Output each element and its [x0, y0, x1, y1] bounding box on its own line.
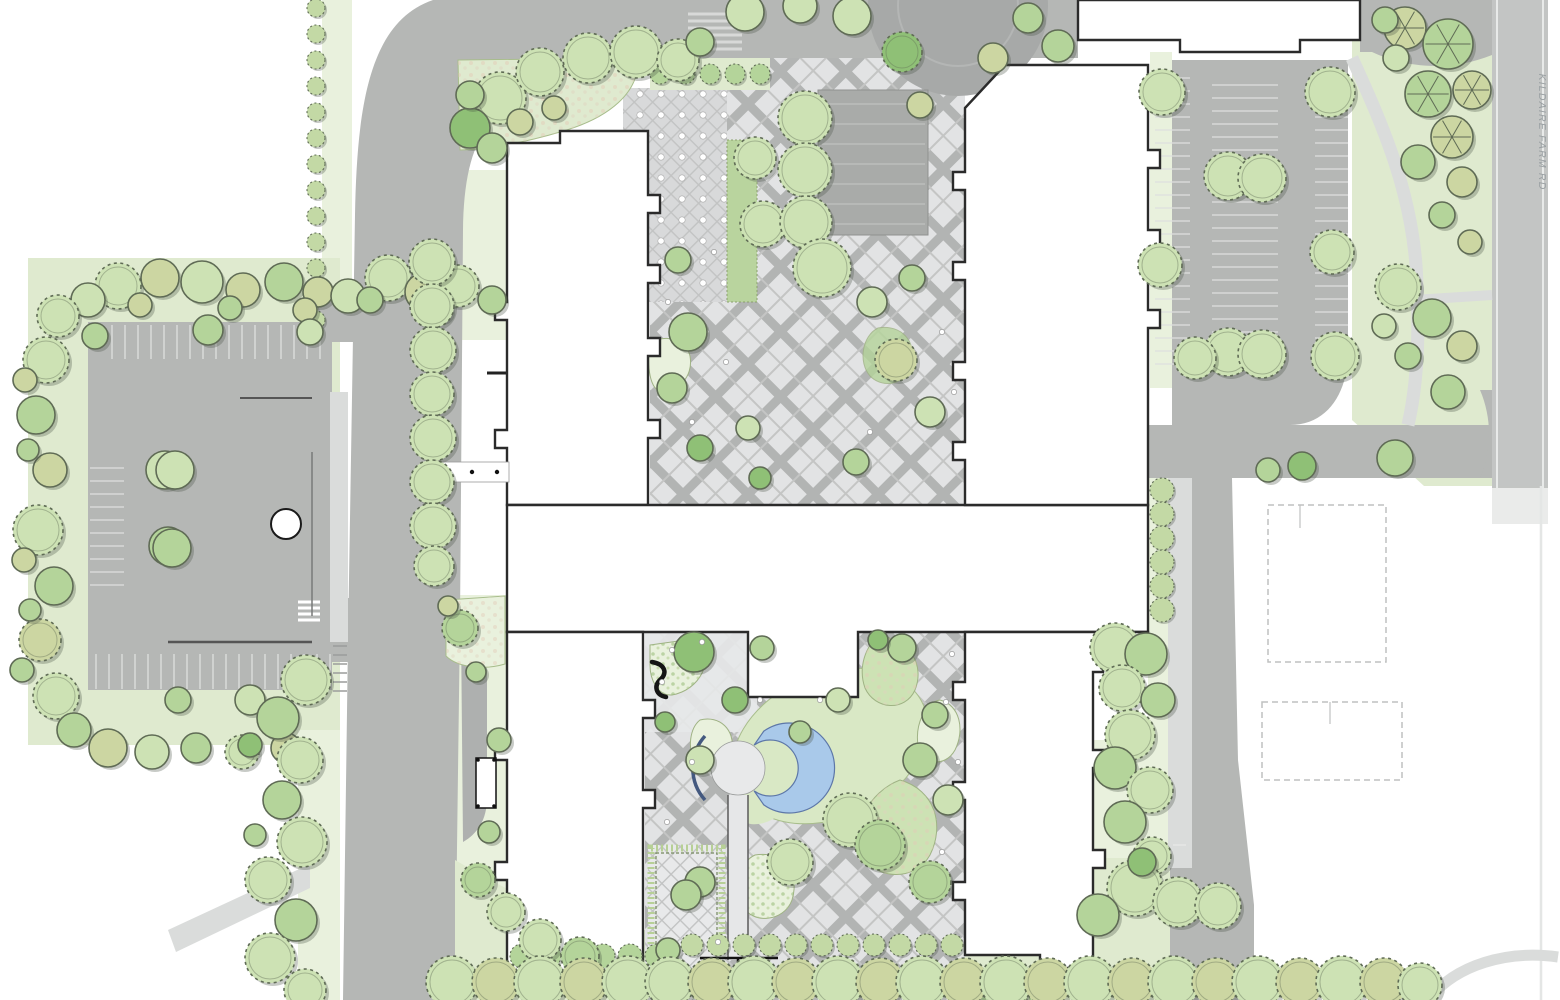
tree: [665, 247, 691, 273]
tree: [487, 728, 511, 752]
tree: [1305, 67, 1355, 117]
ne-wing-hedge: [1150, 502, 1174, 526]
nw-hedge-row: [307, 259, 325, 277]
tree: [519, 919, 561, 961]
tree: [1138, 243, 1182, 287]
tree: [826, 688, 850, 712]
tree: [181, 733, 211, 763]
tree: [438, 596, 458, 616]
tree: [1372, 7, 1398, 33]
tree: [655, 712, 675, 732]
tree: [740, 201, 786, 247]
tree: [1431, 375, 1465, 409]
tree: [456, 81, 484, 109]
flower-dots: [664, 819, 669, 824]
tree: [767, 839, 813, 885]
tree: [1375, 264, 1421, 310]
flower-dots: [699, 639, 704, 644]
tree: [19, 619, 61, 661]
tree: [857, 287, 887, 317]
tree: [1174, 337, 1216, 379]
nw-hedge-row: [307, 103, 325, 121]
flower-dots: [665, 299, 670, 304]
courtyard-south-hedge: [941, 934, 963, 956]
tree: [1013, 3, 1043, 33]
flower-dots: [757, 697, 762, 702]
tree: [277, 737, 323, 783]
tree: [888, 634, 916, 662]
courtyard-south-hedge: [863, 934, 885, 956]
building-north-east: [1078, 0, 1360, 52]
flower-dots: [659, 679, 664, 684]
trellis-north-shrubs: [725, 64, 745, 84]
tree: [277, 817, 327, 867]
tree: [478, 286, 506, 314]
tree: [17, 396, 55, 434]
tree: [410, 327, 456, 373]
tree: [671, 880, 701, 910]
flower-dots: [689, 419, 694, 424]
tree: [922, 702, 948, 728]
future-building-2: [1262, 702, 1402, 780]
nw-hedge-row: [307, 155, 325, 173]
tree: [1256, 458, 1280, 482]
tree: [410, 372, 454, 416]
tree: [17, 439, 39, 461]
tree: [868, 630, 888, 650]
tree: [903, 743, 937, 777]
flower-dots: [711, 249, 716, 254]
tree: [736, 416, 760, 440]
tree: [141, 259, 179, 297]
tree: [57, 713, 91, 747]
tree: [218, 296, 242, 320]
tree: [1099, 665, 1145, 711]
tree: [461, 863, 495, 897]
ne-wing-hedge: [1150, 478, 1174, 502]
tree: [542, 96, 566, 120]
tree: [244, 824, 266, 846]
tree: [750, 636, 774, 660]
nw-hedge-row: [307, 51, 325, 69]
trellis-north-shrubs: [750, 64, 770, 84]
future-building-1: [1268, 505, 1386, 662]
courtyard-south-hedge: [837, 934, 859, 956]
tree: [686, 28, 714, 56]
tree: [245, 857, 291, 903]
flower-dots: [943, 699, 948, 704]
walk-bollards: [470, 470, 474, 474]
tree: [478, 821, 500, 843]
nw-hedge-row: [307, 77, 325, 95]
tree: [563, 33, 613, 83]
tree: [13, 368, 37, 392]
flower-dots: [949, 651, 954, 656]
tree: [12, 548, 36, 572]
flower-dots: [669, 647, 674, 652]
tree: [487, 893, 525, 931]
tree: [153, 529, 191, 567]
courtyard-south-hedge: [759, 934, 781, 956]
tree: [1238, 330, 1286, 378]
tree: [516, 48, 564, 96]
tree: [1447, 331, 1477, 361]
building-wing-ne: [953, 65, 1160, 505]
trellis-north-shrubs: [700, 64, 720, 84]
tree: [89, 729, 127, 767]
tree: [238, 733, 262, 757]
tree: [789, 721, 811, 743]
tree: [181, 261, 223, 303]
tree: [669, 313, 707, 351]
flower-dots: [939, 329, 944, 334]
nw-hedge-row: [307, 207, 325, 225]
tree: [978, 43, 1008, 73]
tree: [909, 861, 951, 903]
tree: [1429, 202, 1455, 228]
tree: [1104, 801, 1146, 843]
tree: [1383, 45, 1409, 71]
flower-dots: [955, 759, 960, 764]
tree: [726, 0, 764, 31]
future-buildings-layer: [1262, 505, 1402, 780]
tree: [915, 397, 945, 427]
labels-layer: KILDAIRE FARM RD: [1536, 73, 1548, 190]
tree: [245, 933, 295, 983]
courtyard-south-hedge: [811, 934, 833, 956]
tree: [165, 687, 191, 713]
tree: [19, 599, 41, 621]
tree: [1139, 69, 1185, 115]
tree: [1128, 848, 1156, 876]
flower-dots: [939, 849, 944, 854]
tree: [477, 133, 507, 163]
tree: [193, 315, 223, 345]
tree: [749, 467, 771, 489]
entry-canopy: [476, 758, 496, 808]
amenity-east-walk: [330, 392, 348, 642]
courtyard-south-hedge: [681, 934, 703, 956]
tree: [1377, 440, 1413, 476]
flower-dots: [867, 429, 872, 434]
tree: [1310, 230, 1354, 274]
ne-wing-hedge: [1150, 574, 1174, 598]
tree: [734, 137, 776, 179]
tree: [410, 415, 456, 461]
tree: [610, 26, 662, 78]
tree: [275, 899, 317, 941]
courtyard-south-hedge: [889, 934, 911, 956]
tree: [33, 673, 79, 719]
tree: [357, 287, 383, 313]
courtyard-south-hedge: [733, 934, 755, 956]
tree: [265, 263, 303, 301]
tree: [687, 435, 713, 461]
tree: [409, 239, 455, 285]
building-wing-nw: [495, 131, 660, 505]
nw-hedge-row: [307, 233, 325, 251]
tree: [778, 91, 832, 145]
ne-wing-hedge: [1150, 598, 1174, 622]
tree: [37, 295, 79, 337]
tree: [1042, 30, 1074, 62]
ne-wing-hedge: [1150, 550, 1174, 574]
tree: [1195, 883, 1241, 929]
fountain-center-paving: [711, 741, 765, 795]
tree: [128, 293, 152, 317]
tree: [1401, 145, 1435, 179]
tree: [1458, 230, 1482, 254]
tree: [297, 319, 323, 345]
canopy-posts: [492, 804, 496, 808]
tree: [1395, 343, 1421, 369]
nw-hedge-row: [307, 181, 325, 199]
flower-dots: [951, 389, 956, 394]
tree: [899, 265, 925, 291]
nw-hedge-row: [307, 129, 325, 147]
east-entry-drive: [1148, 425, 1538, 478]
courtyard-south-hedge: [785, 934, 807, 956]
flower-dots: [817, 697, 822, 702]
tree: [1238, 154, 1286, 202]
left-parking-lot: [88, 322, 332, 690]
tree: [1288, 452, 1316, 480]
courtyard-south-hedge: [707, 934, 729, 956]
flower-dots: [689, 759, 694, 764]
tree: [674, 632, 714, 672]
fountain-plaza-circle: [271, 509, 301, 539]
site-plan-svg: KILDAIRE FARM RD: [0, 0, 1560, 1000]
kildaire-road-fade: [1492, 486, 1548, 524]
tree: [907, 92, 933, 118]
tree: [410, 284, 454, 328]
render-root: KILDAIRE FARM RD: [10, 0, 1558, 1000]
tree: [933, 785, 963, 815]
courtyard-south-hedge: [915, 934, 937, 956]
tree: [875, 339, 917, 381]
tree: [156, 451, 194, 489]
tree: [10, 658, 34, 682]
canopy-posts: [476, 804, 480, 808]
tree: [833, 0, 871, 35]
tree: [410, 503, 456, 549]
flower-dots: [723, 359, 728, 364]
canopy-posts: [492, 758, 496, 762]
tree: [1447, 167, 1477, 197]
tree: [1077, 894, 1119, 936]
tree: [135, 735, 169, 769]
tree: [855, 820, 905, 870]
flower-dots: [715, 939, 720, 944]
tree: [843, 449, 869, 475]
tree: [13, 505, 63, 555]
tree: [657, 373, 687, 403]
tree: [82, 323, 108, 349]
tree: [263, 781, 301, 819]
tree: [722, 687, 748, 713]
tree: [414, 546, 454, 586]
tree: [1413, 299, 1451, 337]
canopy-posts: [476, 758, 480, 762]
ne-wing-hedge: [1150, 526, 1174, 550]
se-corner-walk: [1428, 955, 1558, 1000]
tree: [507, 109, 533, 135]
tree: [281, 655, 331, 705]
road-label: KILDAIRE FARM RD: [1536, 73, 1548, 190]
tree: [293, 298, 317, 322]
tree: [257, 697, 299, 739]
site-plan: KILDAIRE FARM RD: [0, 0, 1560, 1000]
tree: [1372, 314, 1396, 338]
tree: [778, 143, 832, 197]
tree: [410, 460, 454, 504]
nw-hedge-row: [307, 25, 325, 43]
tree: [466, 662, 486, 682]
tree: [1141, 683, 1175, 717]
tree: [35, 567, 73, 605]
tree: [793, 239, 851, 297]
walk-bollards: [495, 470, 499, 474]
tree: [1311, 332, 1359, 380]
tree: [882, 32, 922, 72]
